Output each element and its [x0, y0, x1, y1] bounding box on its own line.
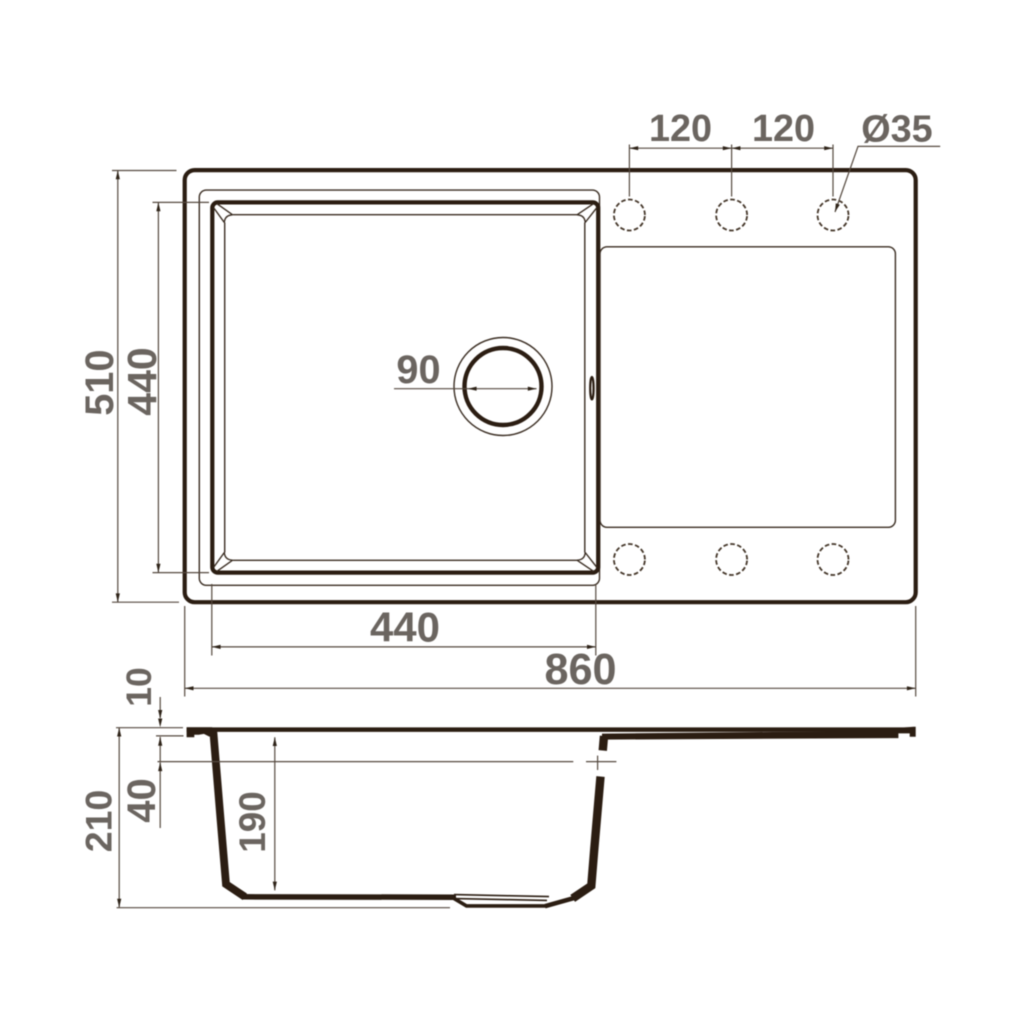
svg-text:10: 10 — [119, 667, 159, 707]
svg-text:440: 440 — [370, 603, 440, 650]
svg-text:860: 860 — [544, 646, 616, 694]
svg-text:40: 40 — [120, 778, 164, 823]
svg-text:120: 120 — [649, 108, 712, 150]
svg-text:Ø35: Ø35 — [861, 109, 932, 151]
svg-text:440: 440 — [119, 347, 165, 415]
svg-text:90: 90 — [396, 348, 440, 392]
svg-text:510: 510 — [78, 350, 122, 416]
svg-text:120: 120 — [752, 108, 815, 150]
svg-text:190: 190 — [232, 791, 273, 853]
svg-text:210: 210 — [78, 790, 120, 853]
